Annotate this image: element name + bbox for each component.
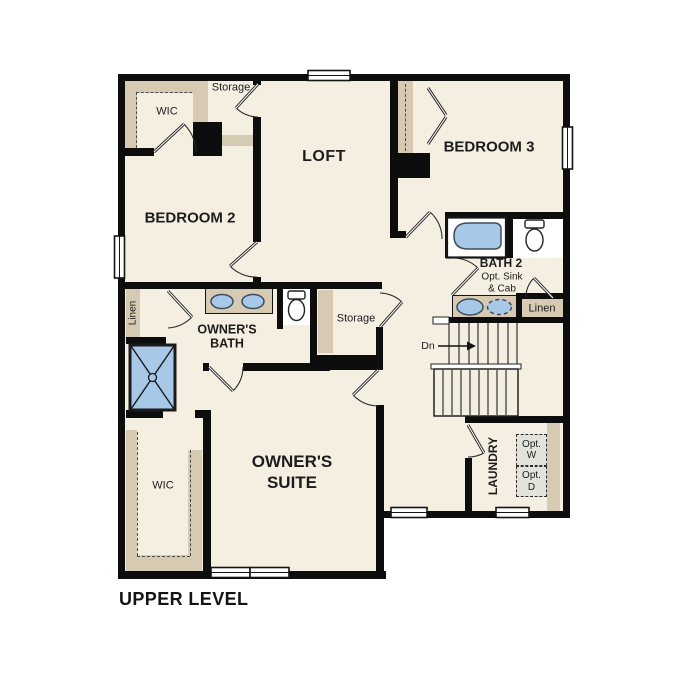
wic-upper-label: WIC — [156, 106, 177, 119]
stairs-down-label: Dn — [421, 340, 434, 352]
optional-sink-icon — [488, 300, 512, 315]
storage-top-label: Storage — [212, 82, 251, 95]
bifold-door-icon — [428, 88, 446, 144]
bath2-note: Opt. Sink & Cab — [481, 272, 522, 295]
owners-suite-label: OWNER'S SUITE — [252, 451, 333, 494]
bathtub-icon — [447, 218, 506, 258]
bedroom2-label: BEDROOM 2 — [145, 209, 236, 226]
floor-plan: Opt. W Opt. D — [0, 0, 687, 687]
shower-icon — [130, 345, 175, 410]
page-title: UPPER LEVEL — [119, 589, 248, 610]
linen-bath2-label: Linen — [529, 303, 556, 316]
owners-bath-label: OWNER'S BATH — [197, 323, 256, 352]
bedroom3-label: BEDROOM 3 — [444, 138, 535, 155]
plan-symbols — [0, 0, 687, 687]
bath2-label: BATH 2 — [480, 257, 522, 271]
down-arrow-icon — [438, 342, 476, 351]
linen-hall-label: Linen — [128, 301, 139, 325]
loft-label: LOFT — [302, 148, 346, 166]
laundry-label: LAUNDRY — [486, 437, 500, 495]
suite-wic-label: WIC — [152, 480, 173, 493]
storage-mid-label: Storage — [337, 313, 376, 326]
stairs — [431, 317, 521, 416]
